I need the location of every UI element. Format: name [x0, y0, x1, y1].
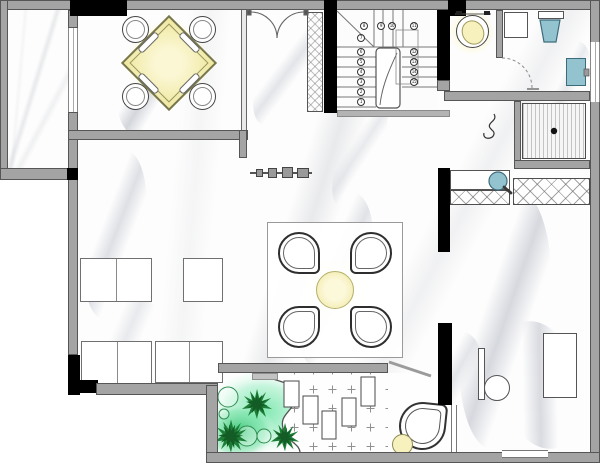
bottom-window	[502, 450, 548, 458]
screen-bead	[297, 168, 309, 178]
wall-black-segment	[438, 168, 450, 252]
mahjong-table-group	[124, 18, 214, 108]
washing-machine	[566, 58, 586, 86]
floor-plan: 765432189101112131415	[0, 0, 600, 463]
stair-step-number: 10	[388, 22, 396, 30]
sink-counter	[450, 170, 510, 190]
wall-segment	[514, 160, 590, 169]
wall-segment	[496, 10, 503, 58]
stair-floor	[337, 10, 437, 110]
screen-bead	[256, 169, 263, 177]
side-table	[484, 375, 510, 401]
wall-black-segment	[68, 380, 98, 393]
stair-step-number: 14	[410, 68, 418, 76]
sofa-module	[155, 341, 223, 383]
wall-segment	[239, 130, 247, 158]
side-window	[590, 42, 600, 102]
stair-step-number: 6	[357, 48, 365, 56]
stair-step-number: 2	[357, 88, 365, 96]
wall-segment	[68, 130, 248, 140]
kitchen-counter	[450, 190, 510, 205]
outside-area	[0, 393, 206, 463]
bathroom-cabinet	[504, 12, 528, 38]
screen-bead	[282, 167, 293, 178]
tub-chair	[350, 232, 392, 274]
stair-step-number: 4	[357, 68, 365, 76]
vanity-counter	[538, 11, 564, 19]
threshold-step	[252, 373, 278, 380]
mahjong-chair	[189, 83, 216, 110]
room-partition	[241, 10, 247, 130]
wall-black-segment	[67, 168, 78, 180]
tub-chair	[278, 306, 320, 348]
round-wash-basin	[456, 15, 489, 48]
wall-black-segment	[437, 10, 450, 80]
glass-partition	[451, 405, 457, 452]
wall-black-segment	[70, 0, 127, 16]
stair-edge-wall	[337, 110, 450, 117]
round-tea-table	[316, 271, 354, 309]
wall-black-segment	[324, 0, 337, 113]
wall-segment	[0, 168, 68, 180]
wall-segment	[68, 112, 78, 355]
stair-step-number: 12	[410, 48, 418, 56]
kitchen-counter	[513, 178, 590, 205]
wall-segment	[0, 0, 8, 180]
wall-black-segment	[438, 323, 452, 405]
wall-segment	[206, 385, 218, 455]
tub-chair	[350, 306, 392, 348]
stair-step-number: 13	[410, 58, 418, 66]
wall-segment	[218, 363, 388, 373]
sofa-module	[81, 341, 152, 384]
stair-step-number: 1	[357, 98, 365, 106]
balcony-window	[68, 28, 78, 112]
stair-step-number: 9	[377, 22, 385, 30]
wall-segment	[96, 383, 218, 395]
entry-wardrobe	[307, 12, 323, 112]
balcony-floor	[8, 10, 68, 168]
wall-segment	[437, 80, 450, 91]
wall-segment	[514, 101, 521, 162]
shower-tray	[522, 103, 586, 159]
screen-bead	[268, 168, 277, 178]
desk	[543, 333, 577, 398]
wall-segment	[444, 91, 590, 101]
sofa-module	[80, 258, 152, 302]
stair-step-number: 8	[360, 22, 368, 30]
tub-chair	[278, 232, 320, 274]
stair-step-number: 15	[410, 78, 418, 86]
stair-step-number: 7	[357, 34, 365, 42]
stair-step-number: 5	[357, 58, 365, 66]
stair-step-number: 11	[410, 22, 418, 30]
wall-black-segment	[448, 0, 466, 16]
stair-step-number: 3	[357, 78, 365, 86]
sofa-module	[183, 258, 223, 302]
